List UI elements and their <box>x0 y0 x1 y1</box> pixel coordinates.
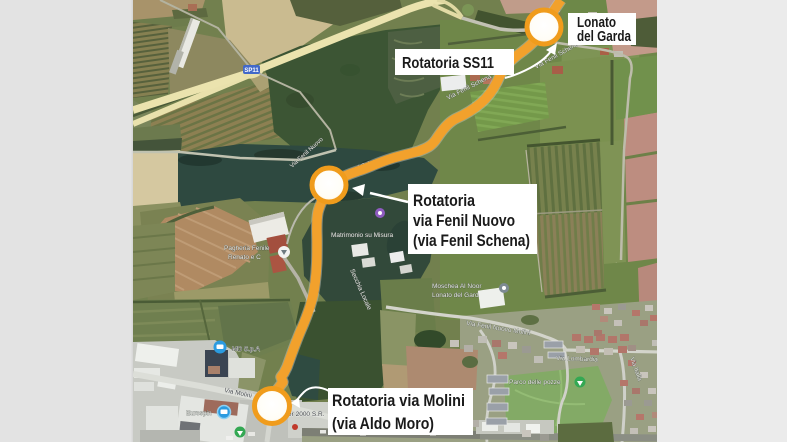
svg-text:Lonato del Garda: Lonato del Garda <box>432 292 483 299</box>
svg-text:Pagheria Fenile: Pagheria Fenile <box>224 245 270 252</box>
svg-text:MD S.p.A: MD S.p.A <box>232 346 260 353</box>
svg-text:(via Fenil Schena): (via Fenil Schena) <box>413 231 530 250</box>
svg-text:via Fenil Nuovo: via Fenil Nuovo <box>413 211 515 230</box>
svg-text:(via Aldo Moro): (via Aldo Moro) <box>332 414 434 433</box>
svg-text:Renato e C: Renato e C <box>228 254 261 261</box>
svg-text:Via Lombardia: Via Lombardia <box>556 355 598 363</box>
svg-text:del Garda: del Garda <box>577 29 632 45</box>
svg-text:Moschea Al Noor: Moschea Al Noor <box>432 283 482 290</box>
svg-text:SP11: SP11 <box>244 68 259 74</box>
svg-text:Rotatoria SS11: Rotatoria SS11 <box>402 55 494 72</box>
svg-text:Matrimonio su Misura: Matrimonio su Misura <box>331 232 394 239</box>
svg-text:er 2000 S.R.: er 2000 S.R. <box>288 411 325 418</box>
svg-text:Eurospin: Eurospin <box>186 410 212 417</box>
svg-text:Rotatoria: Rotatoria <box>413 191 475 210</box>
svg-text:Parco delle pozze: Parco delle pozze <box>509 379 561 386</box>
svg-text:Rotatoria via Molini: Rotatoria via Molini <box>332 391 465 410</box>
